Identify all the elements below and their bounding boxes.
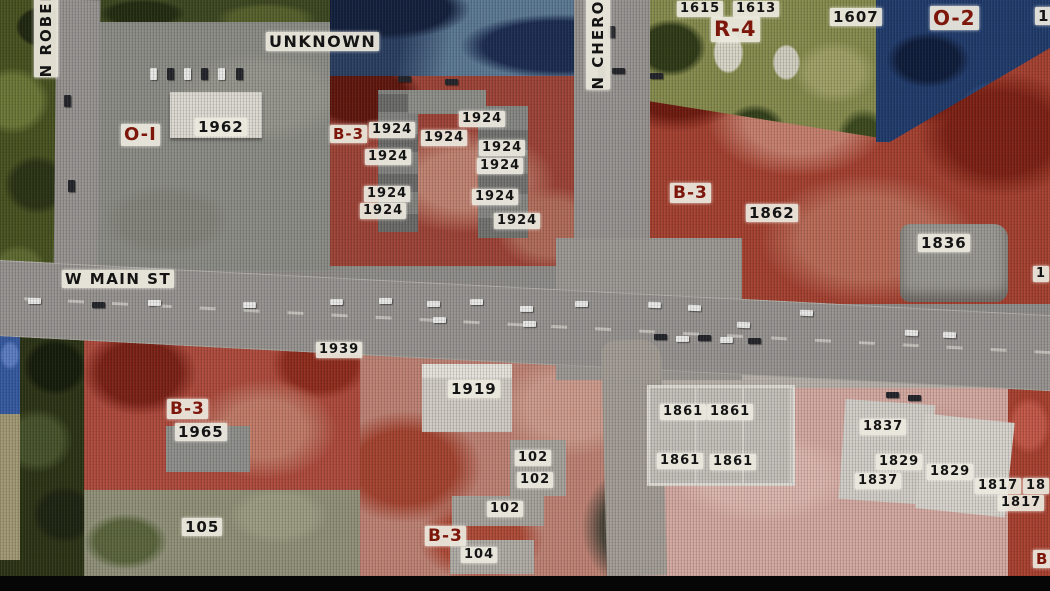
zone-sliver-blue [0, 330, 20, 414]
vehicle [720, 337, 733, 343]
vehicle [748, 338, 761, 344]
vehicle [243, 302, 256, 308]
zone-label: O-I [121, 124, 160, 146]
map-canvas[interactable]: N ROBERUNKNOWNN CHEROKW MAIN STO-IB-3R-4… [0, 0, 1050, 591]
vehicle [886, 392, 899, 398]
parcel-label: 1919 [448, 380, 500, 398]
zone-label: B-3 [167, 399, 208, 419]
vehicle [908, 395, 921, 401]
parcel-label: 1613 [733, 1, 779, 17]
parcel-label: 1837 [855, 473, 901, 489]
vehicle [698, 335, 711, 341]
vehicle [236, 68, 243, 80]
vehicle [150, 68, 157, 80]
vehicle [575, 301, 588, 307]
parcel-label: 1861 [710, 454, 756, 470]
parcel-label: 1939 [316, 342, 362, 358]
parcel-label: 16 [1035, 7, 1050, 25]
parcel-label: 102 [515, 450, 551, 466]
parcel-label: 1829 [876, 454, 922, 470]
parcel-label: 1924 [472, 189, 518, 205]
parcel-label: 102 [517, 472, 553, 488]
vehicle [92, 302, 105, 308]
zone-label: B [1033, 550, 1050, 568]
zone-label: B-3 [670, 183, 711, 203]
parcel-label: 1924 [360, 203, 406, 219]
letterbox-bar [0, 576, 1050, 591]
building-102-a [510, 440, 566, 496]
parcel-label: 1924 [459, 111, 505, 127]
street-label: UNKNOWN [266, 32, 379, 51]
parcel-label: 1924 [477, 158, 523, 174]
vehicle [184, 68, 191, 80]
parcel-label: 1965 [175, 423, 227, 441]
parcel-label: 1817 [975, 478, 1021, 494]
vehicle [800, 310, 813, 317]
parcel-label: 1924 [369, 122, 415, 138]
building-1919 [422, 364, 512, 432]
vehicle [676, 336, 689, 342]
parcel-label: 1607 [830, 8, 882, 26]
vehicle [905, 330, 918, 337]
vehicle [737, 322, 750, 329]
vehicle [612, 68, 625, 74]
parcel-label: 102 [487, 501, 523, 517]
parcel-label: 1836 [918, 234, 970, 252]
parcel-label: 1829 [927, 464, 973, 480]
parcel-label: 1615 [677, 1, 723, 17]
vehicle [398, 76, 411, 82]
zone-label: R-4 [711, 17, 760, 42]
parcel-label: 1861 [707, 404, 753, 420]
parcel-label: 1924 [479, 140, 525, 156]
parcel-label: 1 [1033, 266, 1049, 282]
street-label: N CHEROK [586, 0, 610, 90]
vehicle [943, 332, 956, 339]
zone-label: B-3 [425, 526, 466, 546]
parcel-105-area [84, 490, 362, 576]
vehicle [654, 334, 667, 340]
street-label: W MAIN ST [62, 270, 174, 288]
vehicle [379, 298, 392, 304]
street-label: N ROBER [34, 0, 58, 77]
vehicle [68, 180, 75, 192]
vehicle [218, 68, 225, 80]
zone-oi-parcel [95, 22, 333, 270]
vehicle [148, 300, 161, 306]
vehicle [167, 68, 174, 80]
parcel-label: 1837 [860, 419, 906, 435]
vehicle [445, 79, 458, 85]
vehicle [28, 298, 41, 304]
parcel-label: 1924 [421, 130, 467, 146]
zone-label: O-2 [930, 6, 979, 30]
vehicle [648, 302, 661, 309]
parcel-label: 105 [182, 518, 222, 536]
vehicle [650, 73, 663, 79]
vehicle [520, 306, 533, 312]
parcel-label: 1861 [660, 404, 706, 420]
vehicle [64, 95, 71, 107]
vehicle [330, 299, 343, 305]
zone-label: B-3 [330, 125, 367, 143]
parcel-label: 104 [461, 547, 497, 563]
vehicle [523, 321, 536, 327]
parcel-label: 1924 [364, 186, 410, 202]
vehicle [688, 305, 701, 312]
parcel-label: 18 [1023, 478, 1049, 494]
vehicle [427, 301, 440, 307]
zone-sliver-tan [0, 414, 20, 560]
parcel-label: 1962 [195, 118, 247, 136]
parcel-label: 1924 [494, 213, 540, 229]
vehicle [201, 68, 208, 80]
parcel-label: 1817 [998, 495, 1044, 511]
parcel-label: 1924 [365, 149, 411, 165]
road-n-roberts [54, 0, 101, 282]
parcel-label: 1861 [657, 453, 703, 469]
vehicle [470, 299, 483, 305]
vehicle [433, 317, 446, 323]
parcel-label: 1862 [746, 204, 798, 222]
